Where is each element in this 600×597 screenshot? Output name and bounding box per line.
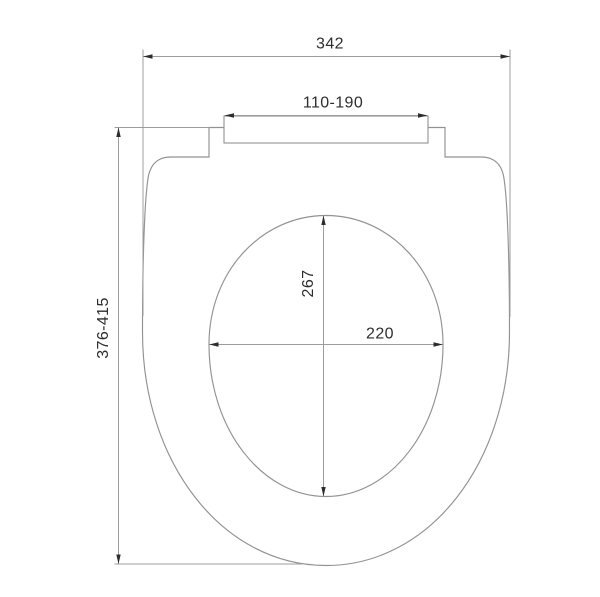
dim-overall-length: 376-415 [95,128,302,565]
arrow-down [321,487,325,497]
dim-inner-opening-length-label: 267 [300,270,317,298]
seat-shape [143,116,510,566]
arrow-left [209,342,219,346]
dim-overall-width: 342 [143,36,510,318]
dim-hinge-mount-width: 110-190 [225,95,428,118]
dim-inner-opening-width-label: 220 [366,326,394,343]
dim-inner-opening-width: 220 [209,326,443,347]
hinge-plate [224,116,428,143]
dim-inner-opening-length: 267 [300,216,326,497]
seat-outline [143,128,510,566]
arrow-right [434,342,444,346]
arrow-down [116,555,120,565]
technical-drawing: 342 110-190 376-415 267 220 [0,0,600,597]
diagram-canvas: 342 110-190 376-415 267 220 [0,0,600,597]
arrow-up [116,128,120,138]
dim-overall-length-label: 376-415 [95,297,112,359]
arrow-left [143,54,153,58]
inner-opening-outline [209,216,443,497]
arrow-up [321,216,325,226]
dim-overall-width-label: 342 [316,36,344,53]
dim-hinge-mount-width-label: 110-190 [303,95,363,112]
arrow-right [501,54,511,58]
